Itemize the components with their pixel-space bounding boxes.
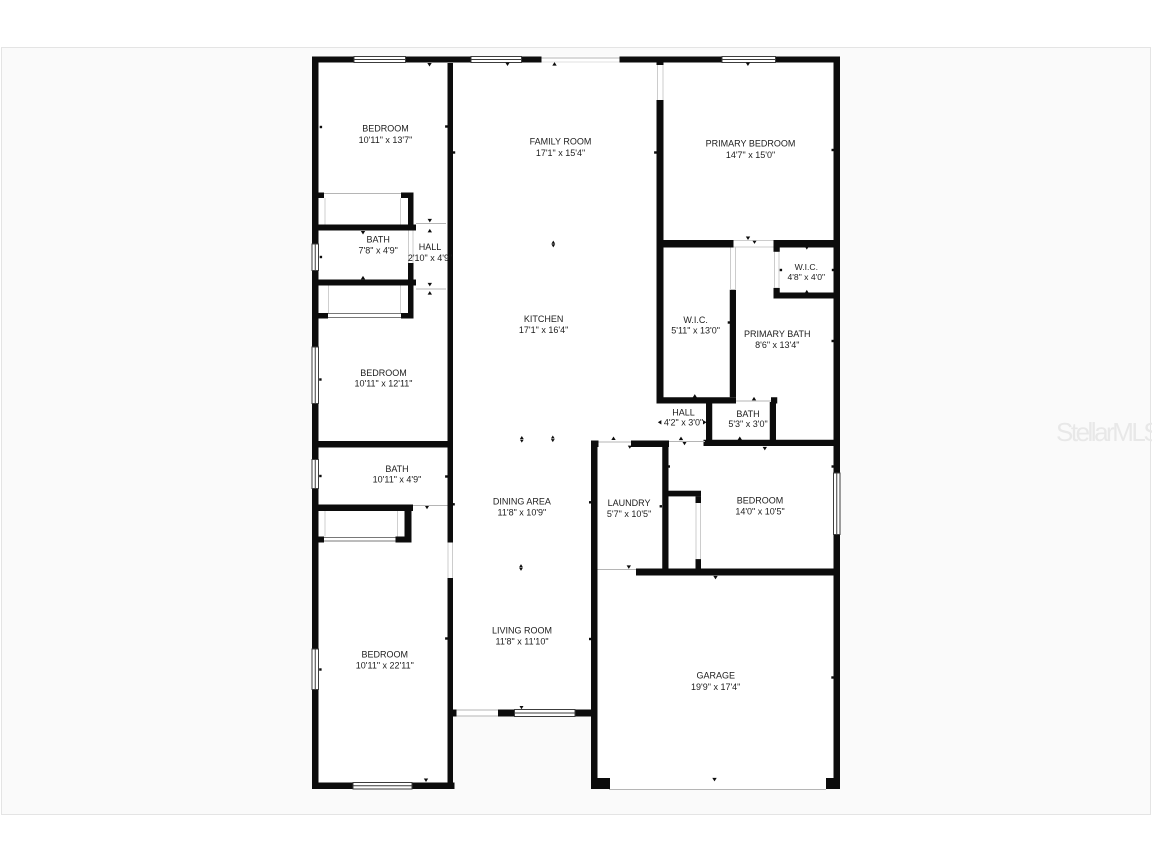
svg-text:StellarMLS: StellarMLS xyxy=(1056,417,1152,447)
svg-text:14'0" x 10'5": 14'0" x 10'5" xyxy=(735,507,784,517)
svg-text:17'1" x 16'4": 17'1" x 16'4" xyxy=(519,325,568,335)
svg-text:LAUNDRY: LAUNDRY xyxy=(608,498,651,508)
svg-text:5'11" x 13'0": 5'11" x 13'0" xyxy=(671,326,720,336)
svg-text:BATH: BATH xyxy=(367,234,390,244)
svg-text:10'11" x 12'11": 10'11" x 12'11" xyxy=(354,379,412,389)
svg-text:W.I.C.: W.I.C. xyxy=(683,315,708,325)
svg-text:BATH: BATH xyxy=(736,409,759,419)
svg-text:11'8" x 11'10": 11'8" x 11'10" xyxy=(495,637,548,647)
svg-text:PRIMARY BEDROOM: PRIMARY BEDROOM xyxy=(706,139,796,149)
svg-text:GARAGE: GARAGE xyxy=(696,671,735,681)
svg-text:4'2" x 3'0": 4'2" x 3'0" xyxy=(664,418,703,428)
svg-text:2'10" x 4'9": 2'10" x 4'9" xyxy=(408,253,452,263)
svg-text:HALL: HALL xyxy=(419,242,442,252)
svg-text:BEDROOM: BEDROOM xyxy=(360,368,407,378)
svg-text:BATH: BATH xyxy=(385,464,408,474)
svg-text:19'9" x 17'4": 19'9" x 17'4" xyxy=(691,682,740,692)
svg-text:10'11" x 22'11": 10'11" x 22'11" xyxy=(356,661,414,671)
svg-text:5'3" x 3'0": 5'3" x 3'0" xyxy=(728,419,767,429)
svg-text:BEDROOM: BEDROOM xyxy=(737,496,784,506)
svg-text:BEDROOM: BEDROOM xyxy=(362,124,409,134)
svg-text:4'8" x 4'0": 4'8" x 4'0" xyxy=(788,272,826,282)
svg-text:10'11" x 13'7": 10'11" x 13'7" xyxy=(359,135,413,145)
svg-text:7'8" x 4'9": 7'8" x 4'9" xyxy=(359,246,398,256)
svg-text:FAMILY ROOM: FAMILY ROOM xyxy=(530,137,592,147)
svg-text:HALL: HALL xyxy=(672,408,695,418)
svg-text:PRIMARY BATH: PRIMARY BATH xyxy=(744,329,811,339)
svg-text:11'8" x 10'9": 11'8" x 10'9" xyxy=(498,508,547,518)
svg-text:BEDROOM: BEDROOM xyxy=(362,649,409,659)
svg-text:17'1" x 15'4": 17'1" x 15'4" xyxy=(536,148,585,158)
svg-text:DINING AREA: DINING AREA xyxy=(493,496,551,506)
svg-text:5'7" x 10'5": 5'7" x 10'5" xyxy=(607,509,651,519)
svg-text:LIVING ROOM: LIVING ROOM xyxy=(492,625,552,635)
svg-text:8'6" x 13'4": 8'6" x 13'4" xyxy=(755,340,799,350)
svg-text:14'7" x 15'0": 14'7" x 15'0" xyxy=(726,150,775,160)
svg-text:KITCHEN: KITCHEN xyxy=(524,314,564,324)
svg-text:W.I.C.: W.I.C. xyxy=(795,262,818,272)
svg-text:10'11" x 4'9": 10'11" x 4'9" xyxy=(373,475,422,485)
